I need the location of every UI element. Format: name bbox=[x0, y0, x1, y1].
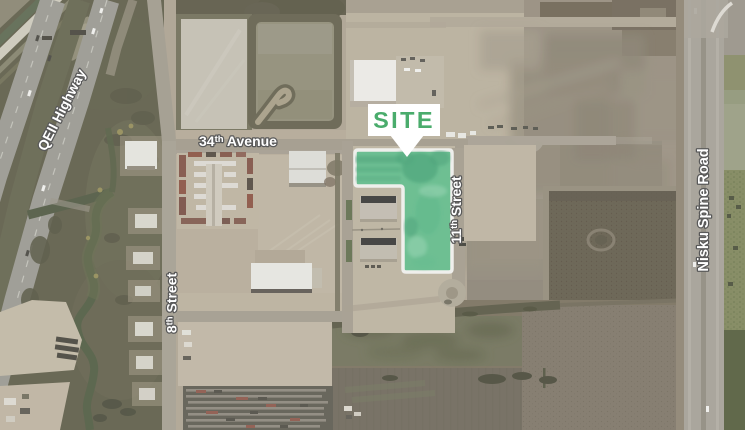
svg-text:11th Street: 11th Street bbox=[448, 176, 464, 244]
svg-text:Nisku Spine Road: Nisku Spine Road bbox=[696, 148, 712, 271]
svg-text:34th Avenue: 34th Avenue bbox=[199, 133, 277, 149]
svg-text:SITE: SITE bbox=[373, 107, 435, 133]
